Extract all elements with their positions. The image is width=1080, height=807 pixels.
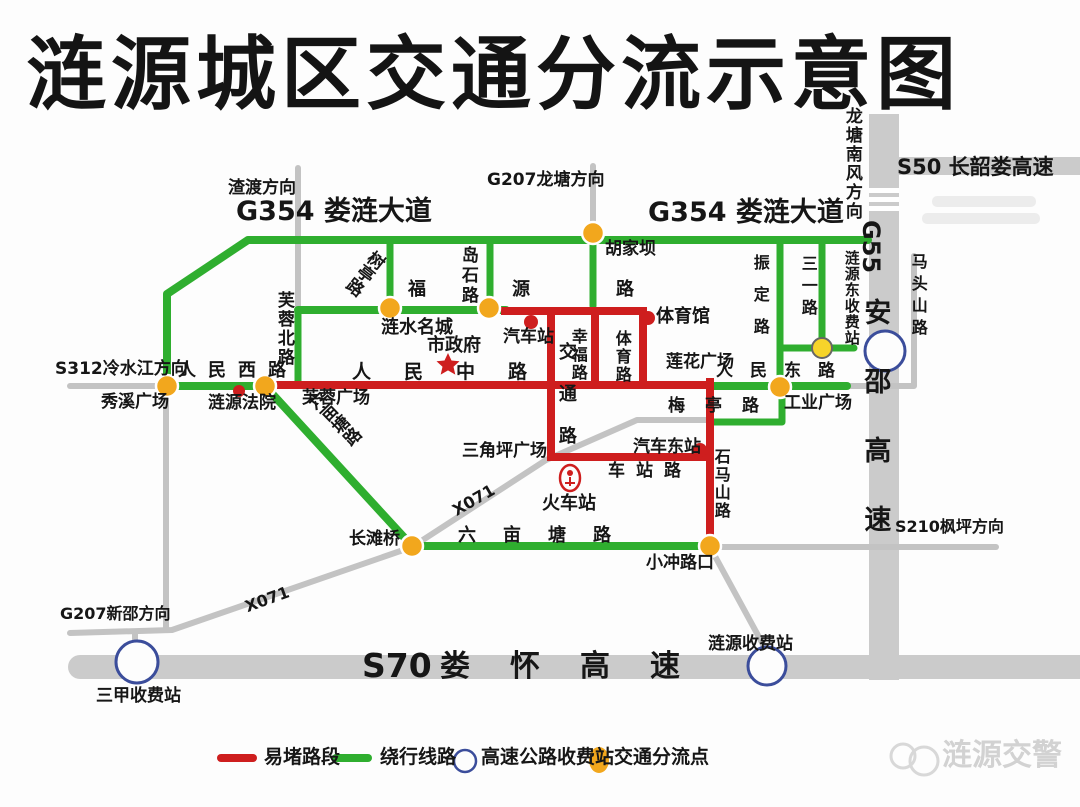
label-gongye-square: 工业广场 [784, 395, 852, 413]
label-bus-station: 汽车站 [503, 329, 554, 347]
label-renmin-east-road: 人民东路 [716, 363, 852, 381]
label-fuyuan-road: 福源路 [408, 281, 720, 300]
g55-gate-stripe [869, 197, 899, 202]
toll-sanjia-ring [116, 641, 158, 683]
diversion-point-lianshui [379, 297, 401, 319]
g55-gate-stripe [869, 206, 899, 211]
traffic-diversion-map: 涟源城区交通分流示意图 [0, 0, 1080, 807]
label-tiyu-road: 体育路 [613, 330, 630, 384]
label-zhending-road: 振定路 [751, 254, 768, 350]
label-g207-longtang: G207龙塘方向 [487, 172, 604, 190]
label-chezhan-road: 车站路 [608, 463, 692, 481]
label-s70: S70 [362, 649, 432, 684]
traffic-police-logo [891, 744, 938, 775]
label-court: 涟源法院 [208, 395, 276, 413]
diversion-point-hujiaba [582, 222, 604, 244]
label-g354-east: G354 娄涟大道 [648, 199, 844, 227]
traffic-police-watermark: 涟源交警 [942, 740, 1062, 772]
label-liumutang-road: 六亩塘路 [458, 527, 638, 546]
label-anshao-expressway: 安邵高速 [860, 298, 888, 574]
label-s312: S312冷水江方向 [55, 361, 188, 379]
g55-gate-stripe [869, 188, 899, 193]
label-g55: G55 [858, 220, 883, 273]
smudge [922, 213, 1040, 224]
diversion-point-daoshi [478, 297, 500, 319]
label-lianyuan-toll: 涟源收费站 [708, 636, 793, 654]
label-shimashan-road: 石马山路 [712, 448, 729, 520]
diversion-point-changtan [401, 535, 423, 557]
label-s50: S50 长韶娄高速 [897, 156, 1054, 178]
label-sanjiaoping-square: 三角坪广场 [462, 443, 547, 461]
label-renmin-middle-road: 人民中路 [352, 363, 560, 383]
label-auto-east-station: 汽车东站 [633, 439, 701, 457]
label-xiuxi-square: 秀溪广场 [101, 394, 169, 412]
label-xingfu-road: 幸福路 [569, 328, 586, 382]
label-matoushan-road: 马头山路 [909, 253, 926, 341]
label-hujiaba: 胡家坝 [605, 241, 656, 259]
label-s210: S210枫坪方向 [895, 519, 1004, 536]
label-louhuai-expressway: 娄怀高速 [440, 651, 720, 683]
label-meiting-road: 梅亭路 [668, 398, 779, 416]
poi-gymnasium-dot [641, 311, 655, 325]
label-g354-west: G354 娄涟大道 [236, 198, 432, 226]
legend-congested-swatch [217, 754, 257, 762]
label-renmin-west-road: 人民西路 [178, 362, 298, 381]
label-furong-north-road: 芙蓉北路 [274, 291, 292, 367]
label-changtan-bridge: 长滩桥 [349, 531, 400, 549]
legend-congested-label: 易堵路段 [264, 748, 340, 768]
smudge [932, 196, 1036, 207]
label-gymnasium: 体育馆 [656, 308, 710, 327]
diversion-point-sanyi-yellow [812, 338, 832, 358]
label-xiaochong-junction: 小冲路口 [646, 555, 714, 573]
legend-diversion-label: 交通分流点 [614, 748, 709, 768]
label-longtang-nanfeng: 龙塘南风方向 [842, 107, 860, 221]
label-sanjia-toll: 三甲收费站 [96, 688, 181, 706]
label-g207-xinshao: G207新邵方向 [60, 606, 171, 623]
railway-station-icon [560, 465, 580, 491]
label-railway-station: 火车站 [542, 495, 596, 514]
legend-toll-label: 高速公路收费站 [481, 748, 614, 768]
legend-detour-label: 绕行线路 [380, 748, 456, 768]
label-sanyi-road: 三一路 [799, 255, 816, 321]
legend-toll-ring [454, 750, 476, 772]
label-city-hall: 市政府 [427, 337, 481, 356]
